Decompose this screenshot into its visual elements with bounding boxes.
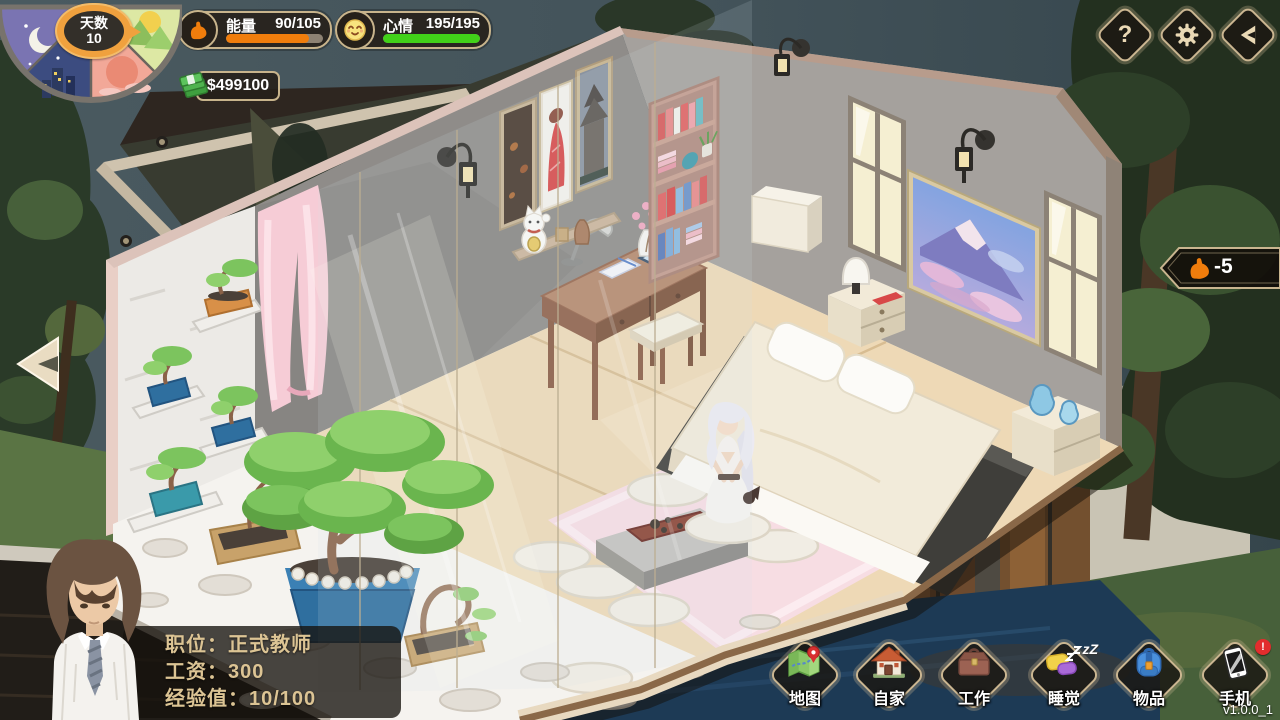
- work-button[interactable]: 工作: [937, 638, 1011, 712]
- player-experience: 经验值：10/100: [165, 686, 401, 713]
- items-label: 物品: [1133, 685, 1165, 709]
- map-icon: [787, 645, 823, 681]
- mood-bar: 心情 195/195: [337, 11, 491, 49]
- gear-icon: [1174, 22, 1200, 48]
- muscle-arm-icon: [178, 10, 218, 50]
- player-position: 职位：正式教师: [165, 632, 401, 659]
- game-screen: 天数 10 能量 90/105 心情 195/195 $499100 ?: [0, 0, 1280, 720]
- day-pointer: [129, 25, 141, 39]
- version-label: v1.0.0_1: [1223, 702, 1273, 717]
- phone-button[interactable]: 手机 !: [1198, 638, 1272, 712]
- scene-illustration: [0, 0, 1280, 720]
- day-label: 天数: [80, 16, 108, 31]
- mood-track: [383, 34, 480, 43]
- back-arrow-icon: [12, 334, 62, 394]
- phone-icon: [1217, 645, 1253, 681]
- items-button[interactable]: 物品: [1112, 638, 1186, 712]
- money-value: $499100: [207, 77, 269, 95]
- back-arrow-button[interactable]: [12, 334, 62, 399]
- map-button[interactable]: 地图: [768, 638, 842, 712]
- window-tall: [1044, 190, 1102, 376]
- mood-label: 心情: [383, 15, 413, 36]
- house-icon: [871, 645, 907, 681]
- cash-icon: [176, 66, 216, 106]
- backpack-icon: [1131, 645, 1167, 681]
- energy-track: [226, 34, 323, 43]
- sleep-zz-badge: zZ: [1082, 641, 1098, 657]
- window-small: [848, 95, 906, 273]
- day-counter: 天数 10: [55, 3, 133, 59]
- pillow-icon: [1045, 645, 1083, 679]
- home-label: 自家: [873, 685, 905, 709]
- energy-bar: 能量 90/105: [180, 11, 332, 49]
- player-info-panel: 职位：正式教师 工资：300 经验值：10/100: [123, 626, 401, 718]
- energy-change-value: -5: [1214, 255, 1233, 279]
- arrow-left-icon: [1235, 22, 1261, 48]
- sleep-label: 睡觉: [1048, 685, 1080, 709]
- energy-fill: [226, 34, 309, 43]
- table-lamp: [843, 258, 869, 284]
- day-value: 10: [86, 31, 102, 46]
- map-label: 地图: [789, 685, 821, 709]
- wall-cabinet: [752, 186, 822, 252]
- home-button[interactable]: 自家: [852, 638, 926, 712]
- briefcase-icon: [956, 645, 992, 681]
- day-dial: 天数 10: [0, 0, 182, 112]
- phone-notification-badge: !: [1255, 639, 1271, 655]
- energy-label: 能量: [226, 15, 256, 36]
- question-icon: ?: [1118, 21, 1133, 49]
- player-avatar: [16, 524, 158, 720]
- muscle-arm-icon: [1186, 255, 1212, 281]
- player-salary: 工资：300: [165, 659, 401, 686]
- mood-fill: [383, 34, 480, 43]
- energy-value: 90/105: [275, 15, 321, 32]
- money-display: $499100: [196, 71, 280, 101]
- smiley-icon: [335, 10, 375, 50]
- mood-value: 195/195: [426, 15, 480, 32]
- work-label: 工作: [958, 685, 990, 709]
- energy-change-popup: -5: [1158, 245, 1280, 291]
- sleep-button[interactable]: 睡觉 zZ: [1027, 638, 1101, 712]
